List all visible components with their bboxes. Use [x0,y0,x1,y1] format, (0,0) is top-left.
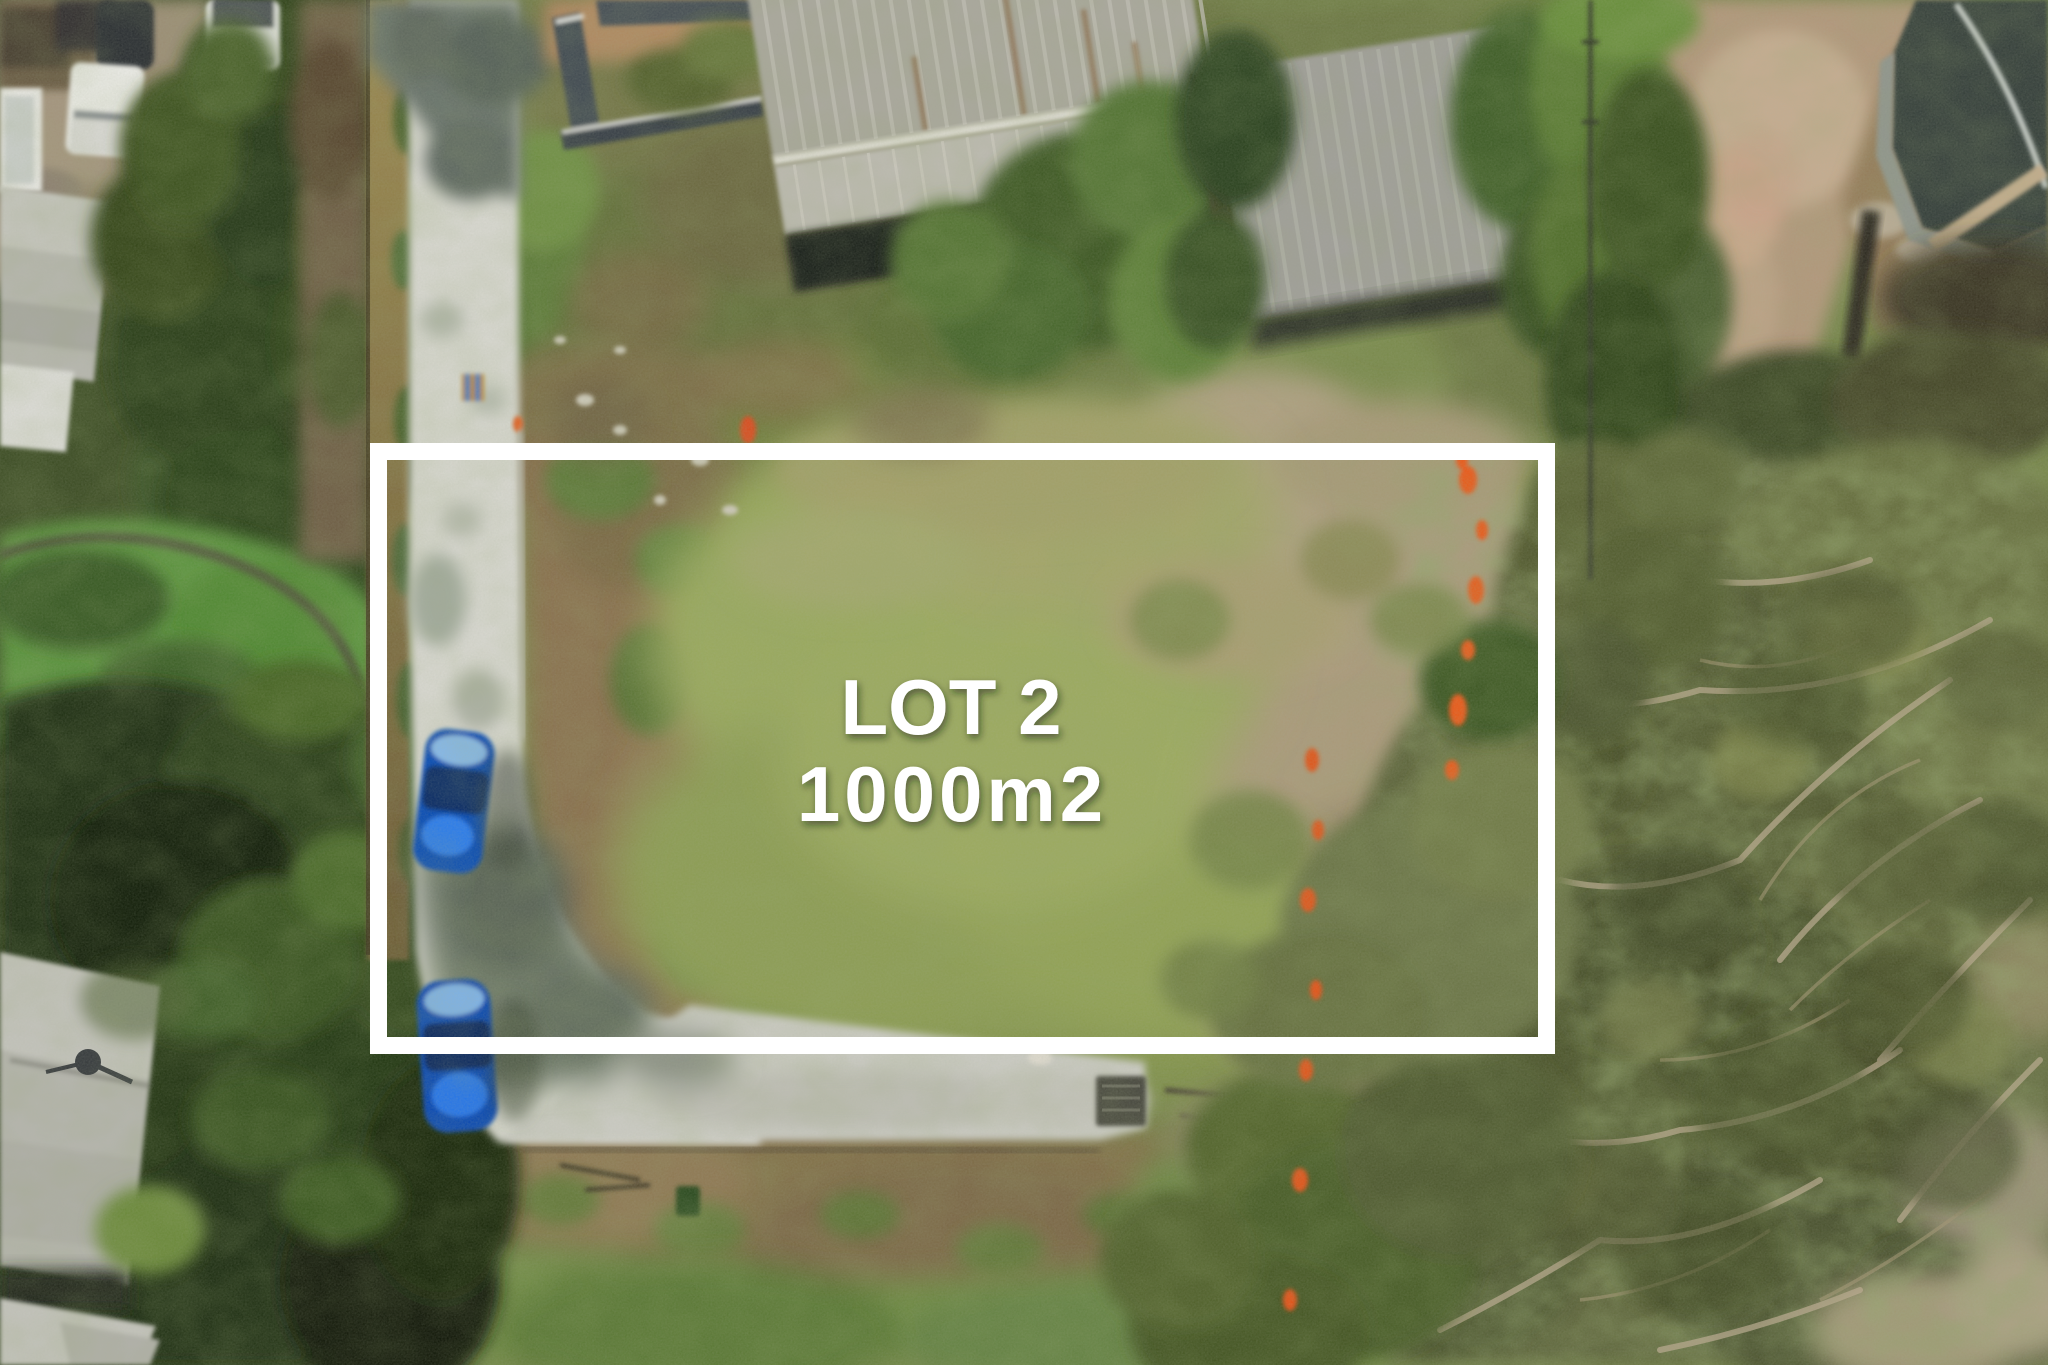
svg-text:1000m2: 1000m2 [797,750,1107,838]
svg-text:LOT 2: LOT 2 [840,663,1061,751]
